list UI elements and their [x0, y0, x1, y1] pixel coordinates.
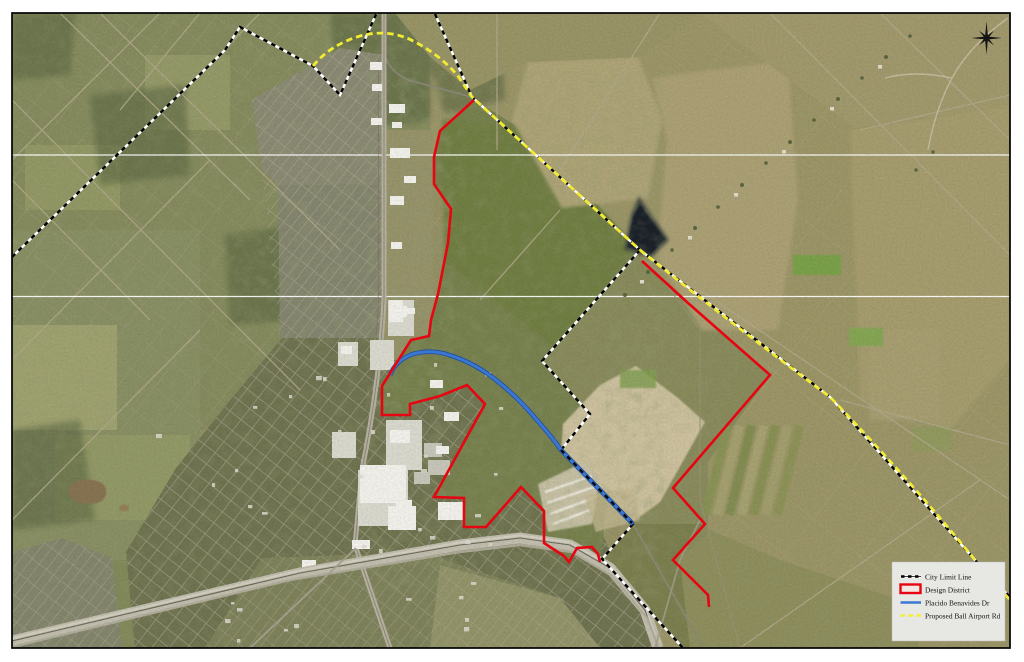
svg-text:Proposed Ball Airport Rd: Proposed Ball Airport Rd	[925, 611, 1001, 620]
svg-text:City Limit Line: City Limit Line	[925, 572, 972, 581]
svg-text:Design District: Design District	[925, 585, 971, 594]
svg-text:Placido Benavides Dr: Placido Benavides Dr	[925, 598, 990, 607]
